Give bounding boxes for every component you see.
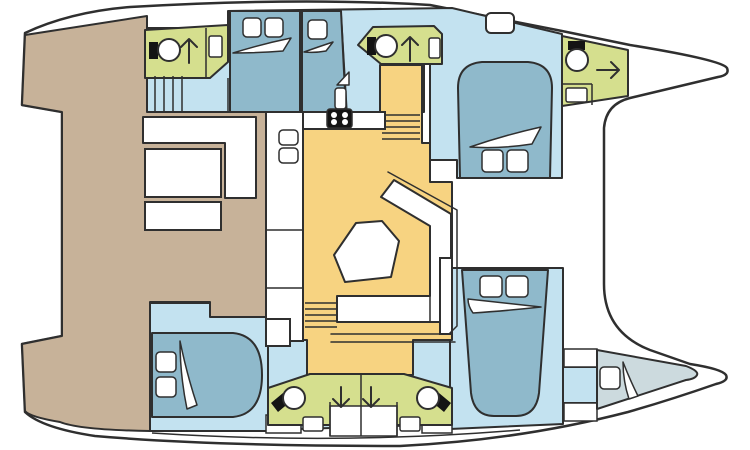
toilet-icon	[417, 387, 439, 409]
burner	[342, 112, 348, 118]
pillow-icon	[308, 20, 327, 39]
cockpit-bench-seat	[145, 202, 221, 230]
catamaran-floor-plan	[0, 0, 750, 450]
sink-icon	[279, 130, 298, 145]
sink-icon	[303, 417, 323, 431]
burner	[342, 119, 348, 125]
bed-icon	[458, 62, 552, 178]
bow-passage-step	[564, 403, 597, 421]
pillow-icon	[600, 367, 620, 389]
pillow-icon	[507, 150, 528, 172]
sink-icon	[209, 36, 222, 57]
toilet-icon	[158, 39, 180, 61]
stove-icon	[327, 109, 352, 128]
toilet-tank	[149, 42, 158, 59]
cockpit-bench-seat	[145, 149, 221, 197]
pillow-icon	[265, 18, 283, 37]
bow-passage-step	[564, 349, 597, 367]
toilet-icon	[375, 35, 397, 57]
sink-icon	[400, 417, 420, 431]
pillow-icon	[506, 276, 528, 297]
pillow-icon	[156, 352, 176, 372]
wardrobe	[266, 319, 290, 346]
bow-passage-floor	[563, 367, 597, 403]
forward-cabin-divider	[440, 258, 452, 334]
pillow-icon	[480, 276, 502, 297]
pillow-icon	[156, 377, 176, 397]
sink-icon	[429, 38, 440, 58]
bed-icon	[462, 270, 548, 416]
sink-icon	[566, 88, 587, 102]
toilet-icon	[283, 387, 305, 409]
sink-icon	[279, 148, 298, 163]
pillow-icon	[482, 150, 503, 172]
burner	[331, 119, 337, 125]
bed-icon	[152, 333, 262, 417]
burner	[331, 112, 337, 118]
deck-hatch-icon	[486, 13, 514, 33]
galley-counter-column	[266, 112, 303, 341]
entry-step	[335, 88, 346, 109]
toilet-icon	[566, 49, 588, 71]
head-door-gap	[330, 406, 397, 436]
stove-top	[327, 109, 352, 128]
pillow-icon	[243, 18, 261, 37]
